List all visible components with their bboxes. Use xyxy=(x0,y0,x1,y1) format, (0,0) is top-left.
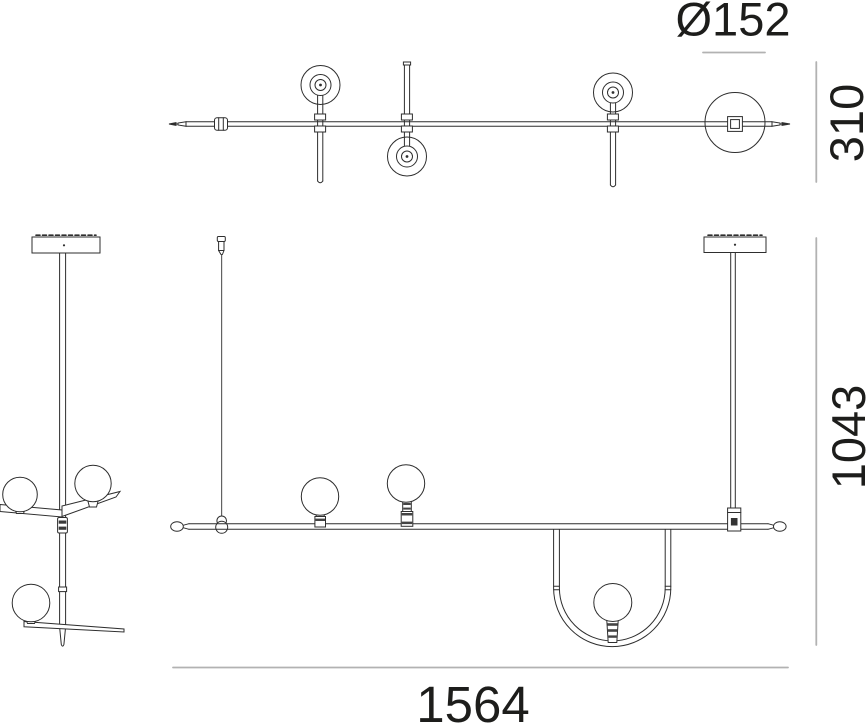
front-cable-suspension xyxy=(216,237,228,534)
plan-large-sphere xyxy=(705,93,765,153)
front-ceiling-canopy xyxy=(704,235,766,252)
plan-arm-2 xyxy=(388,62,427,176)
side-ceiling-canopy xyxy=(32,235,100,253)
side-rod-joint xyxy=(58,518,68,534)
plan-arm-3 xyxy=(594,73,633,187)
plan-cable-bead xyxy=(215,118,228,130)
dimension-height-label: 1043 xyxy=(822,385,867,490)
top-view-drawing xyxy=(169,62,790,187)
front-bar-right-cap xyxy=(774,522,787,532)
front-bar-left-cap xyxy=(171,522,184,532)
front-rod-fitting xyxy=(728,508,741,531)
dimension-lines xyxy=(173,53,816,668)
front-sphere-3 xyxy=(594,584,632,643)
dimension-diameter-label: Ø152 xyxy=(676,0,791,46)
side-rod-collar xyxy=(59,587,67,592)
side-view-drawing xyxy=(0,235,124,646)
dimension-plan-depth-label: 310 xyxy=(820,84,867,162)
front-rigid-rod xyxy=(731,253,736,509)
drawing-canvas: Ø152 310 1043 1564 xyxy=(0,0,867,727)
front-sphere-2 xyxy=(387,465,424,527)
plan-main-bar xyxy=(169,118,790,130)
front-sphere-1 xyxy=(301,478,338,527)
technical-drawing-page: Ø152 310 1043 1564 xyxy=(0,0,867,727)
side-sphere-right xyxy=(75,465,111,501)
front-main-bar xyxy=(171,522,786,532)
side-lower-arm-assembly xyxy=(12,584,124,632)
side-sphere-lower xyxy=(12,584,50,622)
dimension-width-label: 1564 xyxy=(416,676,529,727)
side-sphere-left xyxy=(3,477,38,512)
plan-arm-1 xyxy=(301,66,340,183)
front-view-drawing xyxy=(171,235,786,646)
side-lower-arm xyxy=(24,622,124,633)
